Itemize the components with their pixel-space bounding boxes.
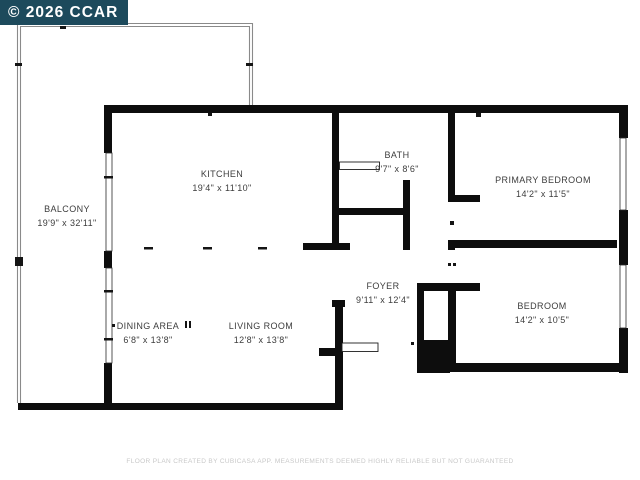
room-label-living-room: LIVING ROOM 12'8" x 13'8" <box>211 319 311 347</box>
room-name: BALCONY <box>17 202 117 216</box>
wall-segment <box>332 113 339 250</box>
wall-segment <box>303 243 350 250</box>
window-tick <box>104 176 113 179</box>
room-name: BATH <box>347 148 447 162</box>
room-dimensions: 9'7" x 8'6" <box>347 162 447 176</box>
window-tick <box>104 290 113 293</box>
shaft-block <box>417 340 450 373</box>
wall-tick <box>208 113 212 116</box>
room-dimensions: 19'9" x 32'11" <box>17 216 117 230</box>
watermark-badge: © 2026 CCAR <box>0 0 128 25</box>
wall-segment <box>448 113 455 195</box>
wall-tick <box>476 113 481 117</box>
separator-dash <box>258 247 267 250</box>
exterior-walls <box>18 105 628 410</box>
floor-plan-drawing <box>0 0 640 480</box>
wall-segment <box>319 348 335 356</box>
door-dot <box>450 221 454 225</box>
wall-segment <box>18 403 343 410</box>
floor-plan-page: © 2026 CCAR BALCONY 19'9" x 32'11" KITCH… <box>0 0 640 480</box>
room-label-bath: BATH 9'7" x 8'6" <box>347 148 447 176</box>
room-dimensions: 9'11" x 12'4" <box>333 293 433 307</box>
wall-segment <box>104 251 112 268</box>
rail-tick <box>246 63 253 66</box>
room-dimensions: 14'2" x 11'5" <box>468 187 618 201</box>
room-name: LIVING ROOM <box>211 319 311 333</box>
room-label-primary-bedroom: PRIMARY BEDROOM 14'2" x 11'5" <box>468 173 618 201</box>
room-label-kitchen: KITCHEN 19'4" x 11'10" <box>162 167 282 195</box>
door-tick <box>411 342 414 345</box>
room-name: BEDROOM <box>467 299 617 313</box>
room-dimensions: 19'4" x 11'10" <box>162 181 282 195</box>
room-name: FOYER <box>333 279 433 293</box>
room-name: KITCHEN <box>162 167 282 181</box>
wall-segment <box>447 363 625 372</box>
wall-segment <box>335 300 343 407</box>
bedroom-window <box>620 265 626 328</box>
wall-segment <box>619 113 628 138</box>
room-name: PRIMARY BEDROOM <box>468 173 618 187</box>
room-label-balcony: BALCONY 19'9" x 32'11" <box>17 202 117 230</box>
room-dimensions: 12'8" x 13'8" <box>211 333 311 347</box>
rail-tick <box>60 26 66 29</box>
wall-segment <box>619 210 628 265</box>
door-symbols <box>340 162 380 352</box>
entry-door-leaf <box>342 343 378 352</box>
wall-segment <box>403 180 410 250</box>
rail-post <box>15 257 23 266</box>
room-dimensions: 6'8" x 13'8" <box>98 333 198 347</box>
separator-dash <box>144 247 153 250</box>
wall-segment <box>104 105 628 113</box>
wall-segment <box>448 240 617 248</box>
room-dimensions: 14'2" x 10'5" <box>467 313 617 327</box>
room-label-dining-area: DINING AREA 6'8" x 13'8" <box>98 319 198 347</box>
door-dot <box>453 263 456 266</box>
wall-segment <box>104 113 112 153</box>
wall-segment <box>104 363 112 410</box>
room-label-bedroom: BEDROOM 14'2" x 10'5" <box>467 299 617 327</box>
room-name: DINING AREA <box>98 319 198 333</box>
wall-segment <box>339 208 410 215</box>
rail-tick <box>15 63 22 66</box>
door-dot <box>448 263 451 266</box>
disclaimer-text: FLOOR PLAN CREATED BY CUBICASA APP. MEAS… <box>0 458 640 465</box>
separator-dash <box>203 247 212 250</box>
primary-bedroom-window <box>620 138 626 210</box>
dining-window <box>106 268 112 363</box>
room-label-foyer: FOYER 9'11" x 12'4" <box>333 279 433 307</box>
